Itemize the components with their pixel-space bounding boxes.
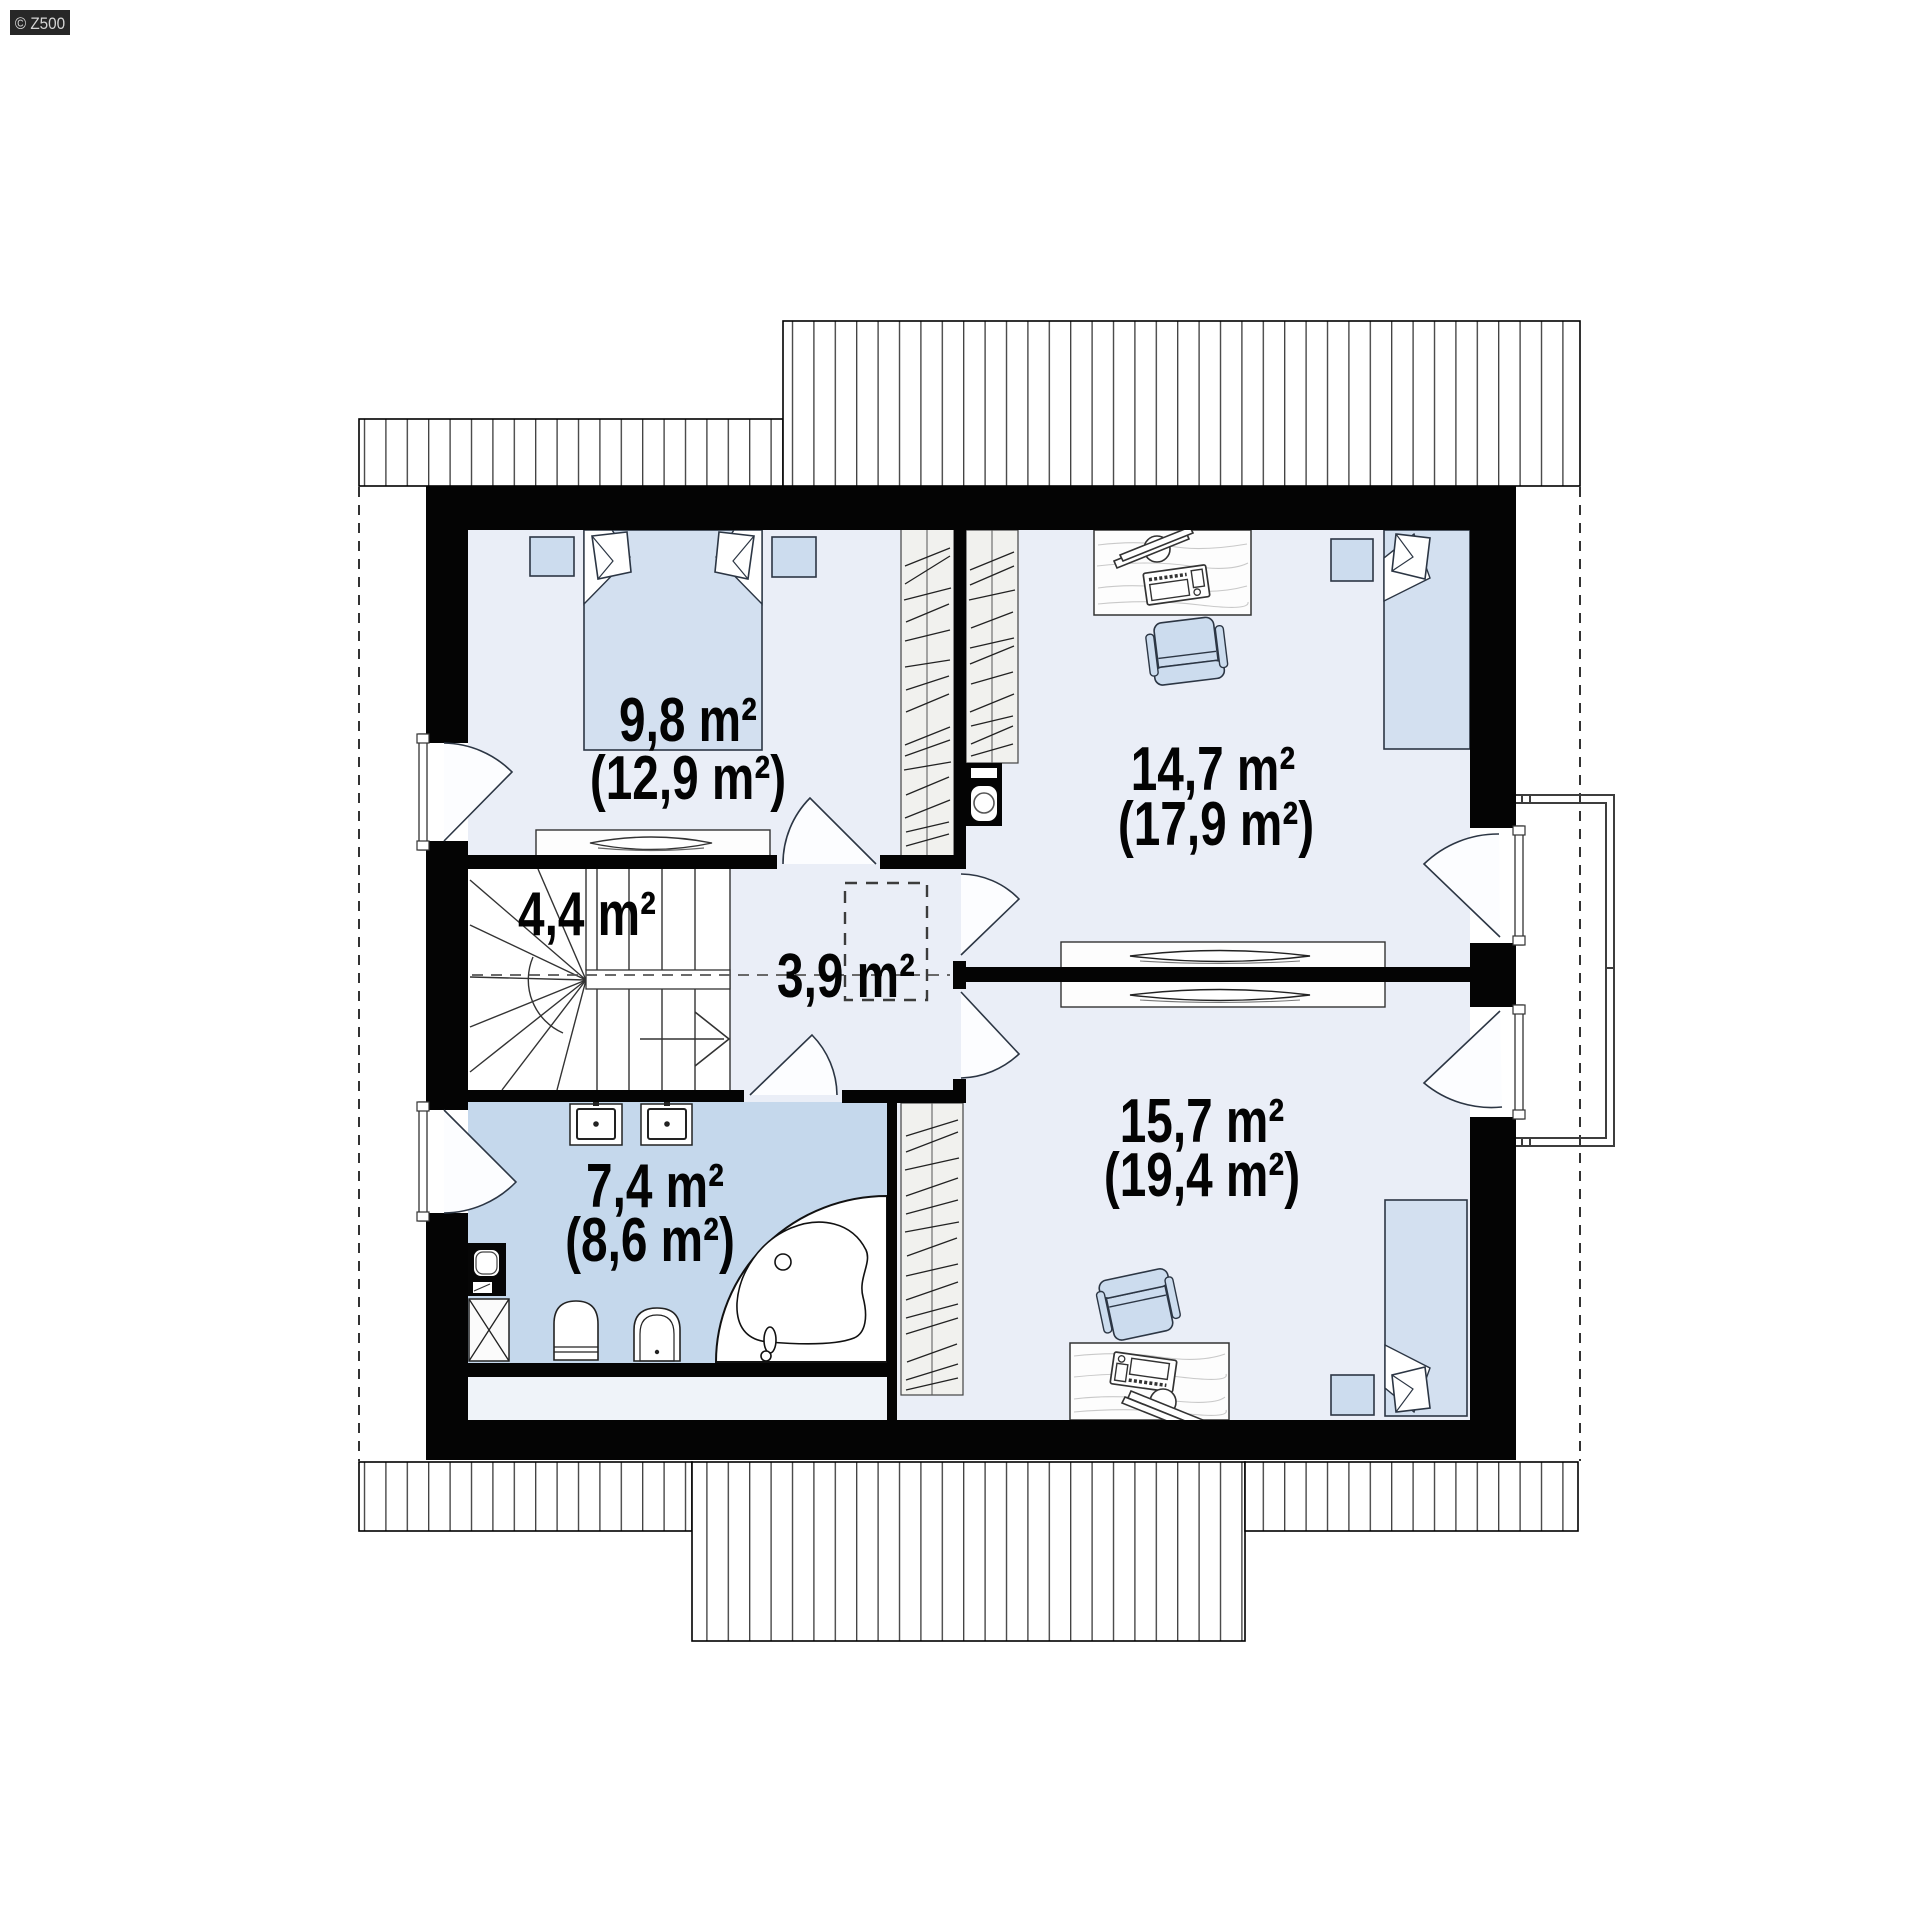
svg-text:© Z500: © Z500 [15,14,65,33]
svg-text:(12,9 m²): (12,9 m²) [590,743,786,812]
svg-text:4,4 m²: 4,4 m² [518,879,656,948]
svg-text:(19,4 m²): (19,4 m²) [1104,1140,1300,1209]
svg-text:3,9 m²: 3,9 m² [777,941,915,1010]
svg-text:(17,9 m²): (17,9 m²) [1118,789,1314,858]
svg-text:(8,6 m²): (8,6 m²) [565,1205,735,1274]
